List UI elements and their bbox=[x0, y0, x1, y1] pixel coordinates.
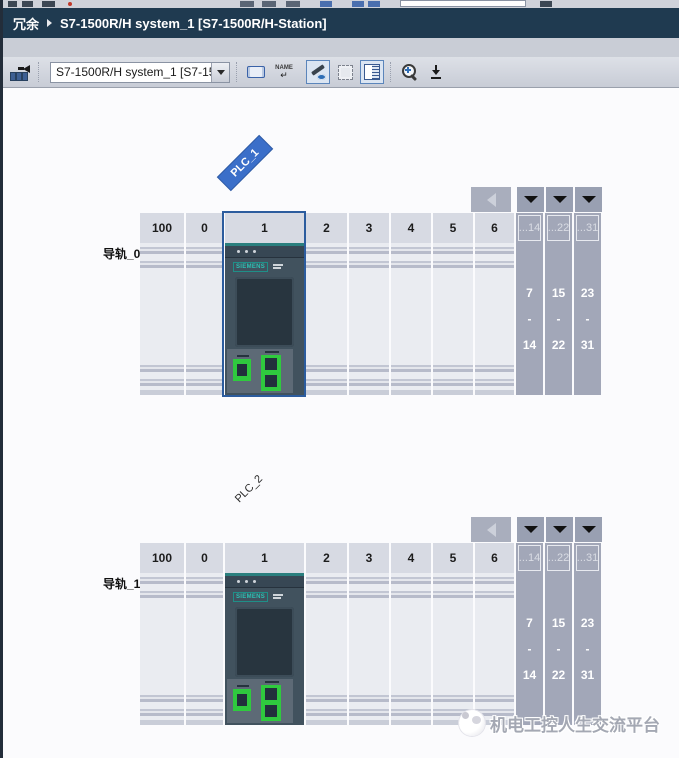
expand-group-22-button[interactable] bbox=[546, 517, 573, 542]
group-23-31[interactable]: 23 - 31 bbox=[574, 243, 601, 395]
device-led-row bbox=[225, 246, 304, 258]
slot-5[interactable] bbox=[433, 573, 473, 725]
ethernet-dual-port-icon bbox=[261, 685, 281, 721]
ethernet-port-icon bbox=[233, 359, 251, 381]
clipped-toolbar-fragment bbox=[400, 0, 526, 7]
station-overview-button[interactable] bbox=[8, 60, 32, 84]
toolbar-spacer bbox=[0, 38, 679, 57]
watermark-logo-icon bbox=[459, 710, 485, 736]
device-type-text bbox=[273, 264, 283, 269]
expand-group-22-button[interactable] bbox=[546, 187, 573, 212]
clipped-toolbar-fragment bbox=[368, 1, 380, 7]
chevron-down-icon bbox=[582, 526, 596, 533]
breadcrumb: 冗余 S7-1500R/H system_1 [S7-1500R/H-Stati… bbox=[0, 8, 679, 38]
ethernet-port-icon bbox=[233, 689, 251, 711]
breadcrumb-title[interactable]: S7-1500R/H system_1 [S7-1500R/H-Station] bbox=[60, 16, 327, 31]
tia-portal-device-view: 冗余 S7-1500R/H system_1 [S7-1500R/H-Stati… bbox=[0, 0, 679, 758]
slot-header-3[interactable]: 3 bbox=[349, 213, 389, 243]
clipped-toolbar-fragment bbox=[352, 1, 364, 7]
slot-1[interactable]: SIEMENS bbox=[225, 573, 304, 725]
cpu-display-panel bbox=[235, 277, 294, 347]
slot-header-100[interactable]: 100 bbox=[140, 543, 184, 573]
slot-4[interactable] bbox=[391, 243, 431, 395]
slot-3[interactable] bbox=[349, 243, 389, 395]
chevron-down-icon bbox=[524, 196, 538, 203]
device-select-value: S7-1500R/H system_1 [S7-150 bbox=[51, 65, 211, 79]
toolbar-separator bbox=[236, 62, 238, 82]
rail-1: PLC_2 导轨_1 100 0 1 2 3 4 5 6 ...14 ...22… bbox=[140, 517, 602, 725]
cpu-connector-panel bbox=[227, 679, 293, 723]
cpu-connector-panel bbox=[227, 349, 293, 393]
chevron-down-icon bbox=[582, 196, 596, 203]
rename-icon: NAME ↵ bbox=[275, 65, 293, 80]
rail-0: PLC_1 导轨_0 100 0 1 2 3 4 5 6 ...14 ...22… bbox=[140, 187, 602, 395]
group-header-14[interactable]: ...14 bbox=[516, 213, 543, 243]
highlight-pen-eye-icon bbox=[309, 64, 327, 80]
chevron-down-icon bbox=[524, 526, 538, 533]
slot-header-0[interactable]: 0 bbox=[186, 543, 223, 573]
clipped-toolbar-fragment bbox=[320, 1, 332, 7]
expand-group-31-button[interactable] bbox=[575, 517, 602, 542]
slot-3[interactable] bbox=[349, 573, 389, 725]
station-icon bbox=[10, 63, 30, 81]
width-adjust-icon bbox=[247, 66, 265, 78]
table-columns-icon bbox=[364, 64, 380, 80]
slot-1[interactable]: SIEMENS bbox=[225, 243, 304, 395]
chevron-down-icon bbox=[553, 196, 567, 203]
rail-body: SIEMENS bbox=[140, 243, 601, 395]
slot-0[interactable] bbox=[186, 243, 223, 395]
plc2-name-label[interactable]: PLC_2 bbox=[226, 466, 273, 513]
window-left-edge bbox=[0, 0, 3, 758]
plc2-cpu-device[interactable]: SIEMENS bbox=[225, 573, 304, 725]
slot-header-2[interactable]: 2 bbox=[306, 543, 347, 573]
group-7-14[interactable]: 7 - 14 bbox=[516, 243, 543, 395]
watermark-text: 机电工控人生交流平台 bbox=[490, 711, 660, 736]
expand-group-14-button[interactable] bbox=[517, 187, 544, 212]
group-15-22[interactable]: 15 - 22 bbox=[545, 243, 572, 395]
scroll-left-button[interactable] bbox=[471, 187, 511, 212]
slot-4[interactable] bbox=[391, 573, 431, 725]
rail0-label[interactable]: 导轨_0 bbox=[103, 245, 140, 262]
chevron-down-icon bbox=[553, 526, 567, 533]
slot-header-1[interactable]: 1 bbox=[225, 543, 304, 573]
slot-header-5[interactable]: 5 bbox=[433, 213, 473, 243]
slot-100[interactable] bbox=[140, 243, 184, 395]
slot-header-row: 100 0 1 2 3 4 5 6 ...14 ...22 ...31 bbox=[140, 213, 601, 243]
clipped-toolbar-fragment bbox=[262, 1, 276, 7]
group-7-14[interactable]: 7 - 14 bbox=[516, 573, 543, 725]
slot-header-6[interactable]: 6 bbox=[475, 213, 514, 243]
dashed-grid-icon bbox=[338, 65, 353, 80]
scroll-left-button[interactable] bbox=[471, 517, 511, 542]
chevron-left-icon bbox=[487, 193, 496, 207]
clipped-toolbar-fragment bbox=[286, 1, 300, 7]
device-select[interactable]: S7-1500R/H system_1 [S7-150 bbox=[50, 62, 230, 83]
siemens-logo: SIEMENS bbox=[233, 262, 268, 272]
plc1-name-label[interactable]: PLC_1 bbox=[218, 136, 272, 190]
device-brand-row: SIEMENS bbox=[225, 589, 304, 604]
clipped-toolbar-fragment bbox=[42, 1, 55, 7]
group-23-31[interactable]: 23 - 31 bbox=[574, 573, 601, 725]
slot-header-2[interactable]: 2 bbox=[306, 213, 347, 243]
zoom-in-icon bbox=[401, 63, 419, 81]
watermark: 机电工控人生交流平台 bbox=[459, 710, 660, 736]
device-type-text bbox=[273, 594, 283, 599]
rail-body: SIEMENS bbox=[140, 573, 601, 725]
adjust-width-button[interactable] bbox=[244, 60, 268, 84]
slot-header-4[interactable]: 4 bbox=[391, 213, 431, 243]
group-15-22[interactable]: 15 - 22 bbox=[545, 573, 572, 725]
toolbar-separator bbox=[390, 62, 392, 82]
group-header-22[interactable]: ...22 bbox=[545, 213, 572, 243]
save-layout-button[interactable] bbox=[424, 60, 448, 84]
group-header-31[interactable]: ...31 bbox=[574, 213, 601, 243]
show-columns-button[interactable] bbox=[360, 60, 384, 84]
slot-2[interactable] bbox=[306, 243, 347, 395]
slot-0[interactable] bbox=[186, 573, 223, 725]
slot-100[interactable] bbox=[140, 573, 184, 725]
expand-group-31-button[interactable] bbox=[575, 187, 602, 212]
slot-header-3[interactable]: 3 bbox=[349, 543, 389, 573]
slot-header-row: 100 0 1 2 3 4 5 6 ...14 ...22 ...31 bbox=[140, 543, 601, 573]
siemens-logo: SIEMENS bbox=[233, 592, 268, 602]
slot-header-0[interactable]: 0 bbox=[186, 213, 223, 243]
group-header-22[interactable]: ...22 bbox=[545, 543, 572, 573]
clipped-main-toolbar bbox=[0, 0, 679, 8]
chevron-down-icon[interactable] bbox=[211, 63, 229, 82]
slot-header-100[interactable]: 100 bbox=[140, 213, 184, 243]
slot-header-1[interactable]: 1 bbox=[225, 213, 304, 243]
toolbar-separator bbox=[38, 62, 40, 82]
slot-6[interactable] bbox=[475, 573, 514, 725]
device-view-toolbar: S7-1500R/H system_1 [S7-150 NAME ↵ bbox=[0, 57, 679, 88]
clipped-toolbar-fragment bbox=[8, 1, 17, 7]
slot-header-5[interactable]: 5 bbox=[433, 543, 473, 573]
slot-6[interactable] bbox=[475, 243, 514, 395]
show-grid-button[interactable] bbox=[333, 60, 357, 84]
rail1-label[interactable]: 导轨_1 bbox=[103, 575, 140, 592]
device-brand-row: SIEMENS bbox=[225, 259, 304, 274]
device-view-canvas: PLC_1 导轨_0 100 0 1 2 3 4 5 6 ...14 ...22… bbox=[0, 88, 679, 758]
group-header-31[interactable]: ...31 bbox=[574, 543, 601, 573]
download-arrow-icon bbox=[430, 65, 442, 79]
clipped-toolbar-fragment bbox=[22, 1, 33, 7]
clipped-toolbar-fragment bbox=[540, 1, 552, 7]
show-labels-button[interactable] bbox=[306, 60, 330, 84]
slot-5[interactable] bbox=[433, 243, 473, 395]
group-header-14[interactable]: ...14 bbox=[516, 543, 543, 573]
slot-header-4[interactable]: 4 bbox=[391, 543, 431, 573]
slot-header-6[interactable]: 6 bbox=[475, 543, 514, 573]
plc1-cpu-device[interactable]: SIEMENS bbox=[225, 243, 304, 395]
cpu-display-panel bbox=[235, 607, 294, 677]
breadcrumb-root[interactable]: 冗余 bbox=[13, 14, 39, 33]
chevron-left-icon bbox=[487, 523, 496, 537]
clipped-toolbar-fragment bbox=[240, 1, 254, 7]
ethernet-dual-port-icon bbox=[261, 355, 281, 391]
rename-button[interactable]: NAME ↵ bbox=[272, 60, 296, 84]
breadcrumb-arrow-icon bbox=[47, 19, 52, 27]
zoom-button[interactable] bbox=[398, 60, 422, 84]
slot-2[interactable] bbox=[306, 573, 347, 725]
device-led-row bbox=[225, 576, 304, 588]
clipped-toolbar-fragment bbox=[68, 2, 72, 6]
expand-group-14-button[interactable] bbox=[517, 517, 544, 542]
